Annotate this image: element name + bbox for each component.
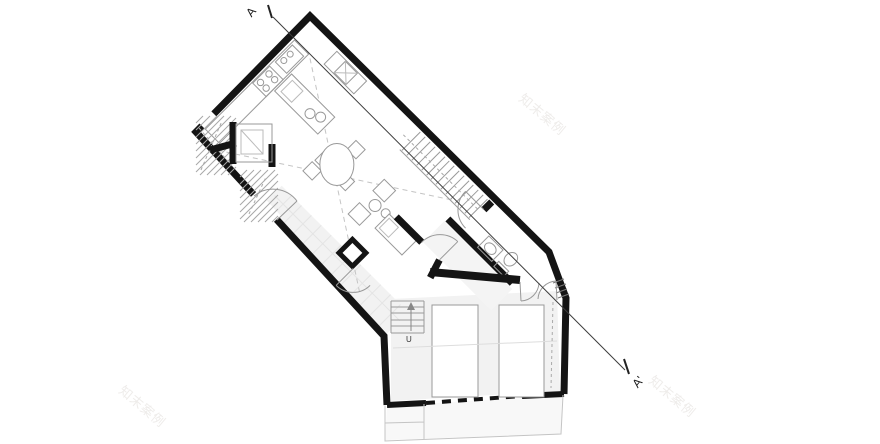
stair-up-label: U bbox=[406, 335, 412, 344]
sink-basin bbox=[286, 50, 294, 58]
slider-end-left bbox=[387, 403, 426, 405]
toilet-bowl bbox=[501, 250, 520, 269]
sink-basin bbox=[280, 56, 288, 64]
side-stair-opening bbox=[202, 114, 214, 126]
bath-wall-stub bbox=[484, 202, 492, 210]
section-label-start: A bbox=[243, 4, 259, 19]
bed bbox=[499, 305, 544, 397]
side-table bbox=[367, 197, 384, 214]
section-tick-start bbox=[268, 5, 272, 18]
floor-plan-screenshot: U A A' 知末案例 知末案例 知末案例 bbox=[0, 0, 880, 444]
watermark: 知末案例 bbox=[515, 91, 568, 139]
floor-plan-canvas: U A A' 知末案例 知末案例 知末案例 bbox=[0, 0, 880, 444]
bed bbox=[432, 305, 478, 397]
watermark: 知末案例 bbox=[115, 383, 168, 431]
section-tick-end bbox=[624, 359, 629, 374]
armchair bbox=[373, 179, 396, 202]
armchair bbox=[348, 203, 371, 226]
entry-closet-diagonal bbox=[241, 130, 263, 154]
watermark: 知末案例 bbox=[645, 373, 698, 421]
dining-table bbox=[320, 143, 354, 185]
section-label-end: A' bbox=[629, 374, 646, 391]
kitchen-island bbox=[275, 74, 335, 134]
